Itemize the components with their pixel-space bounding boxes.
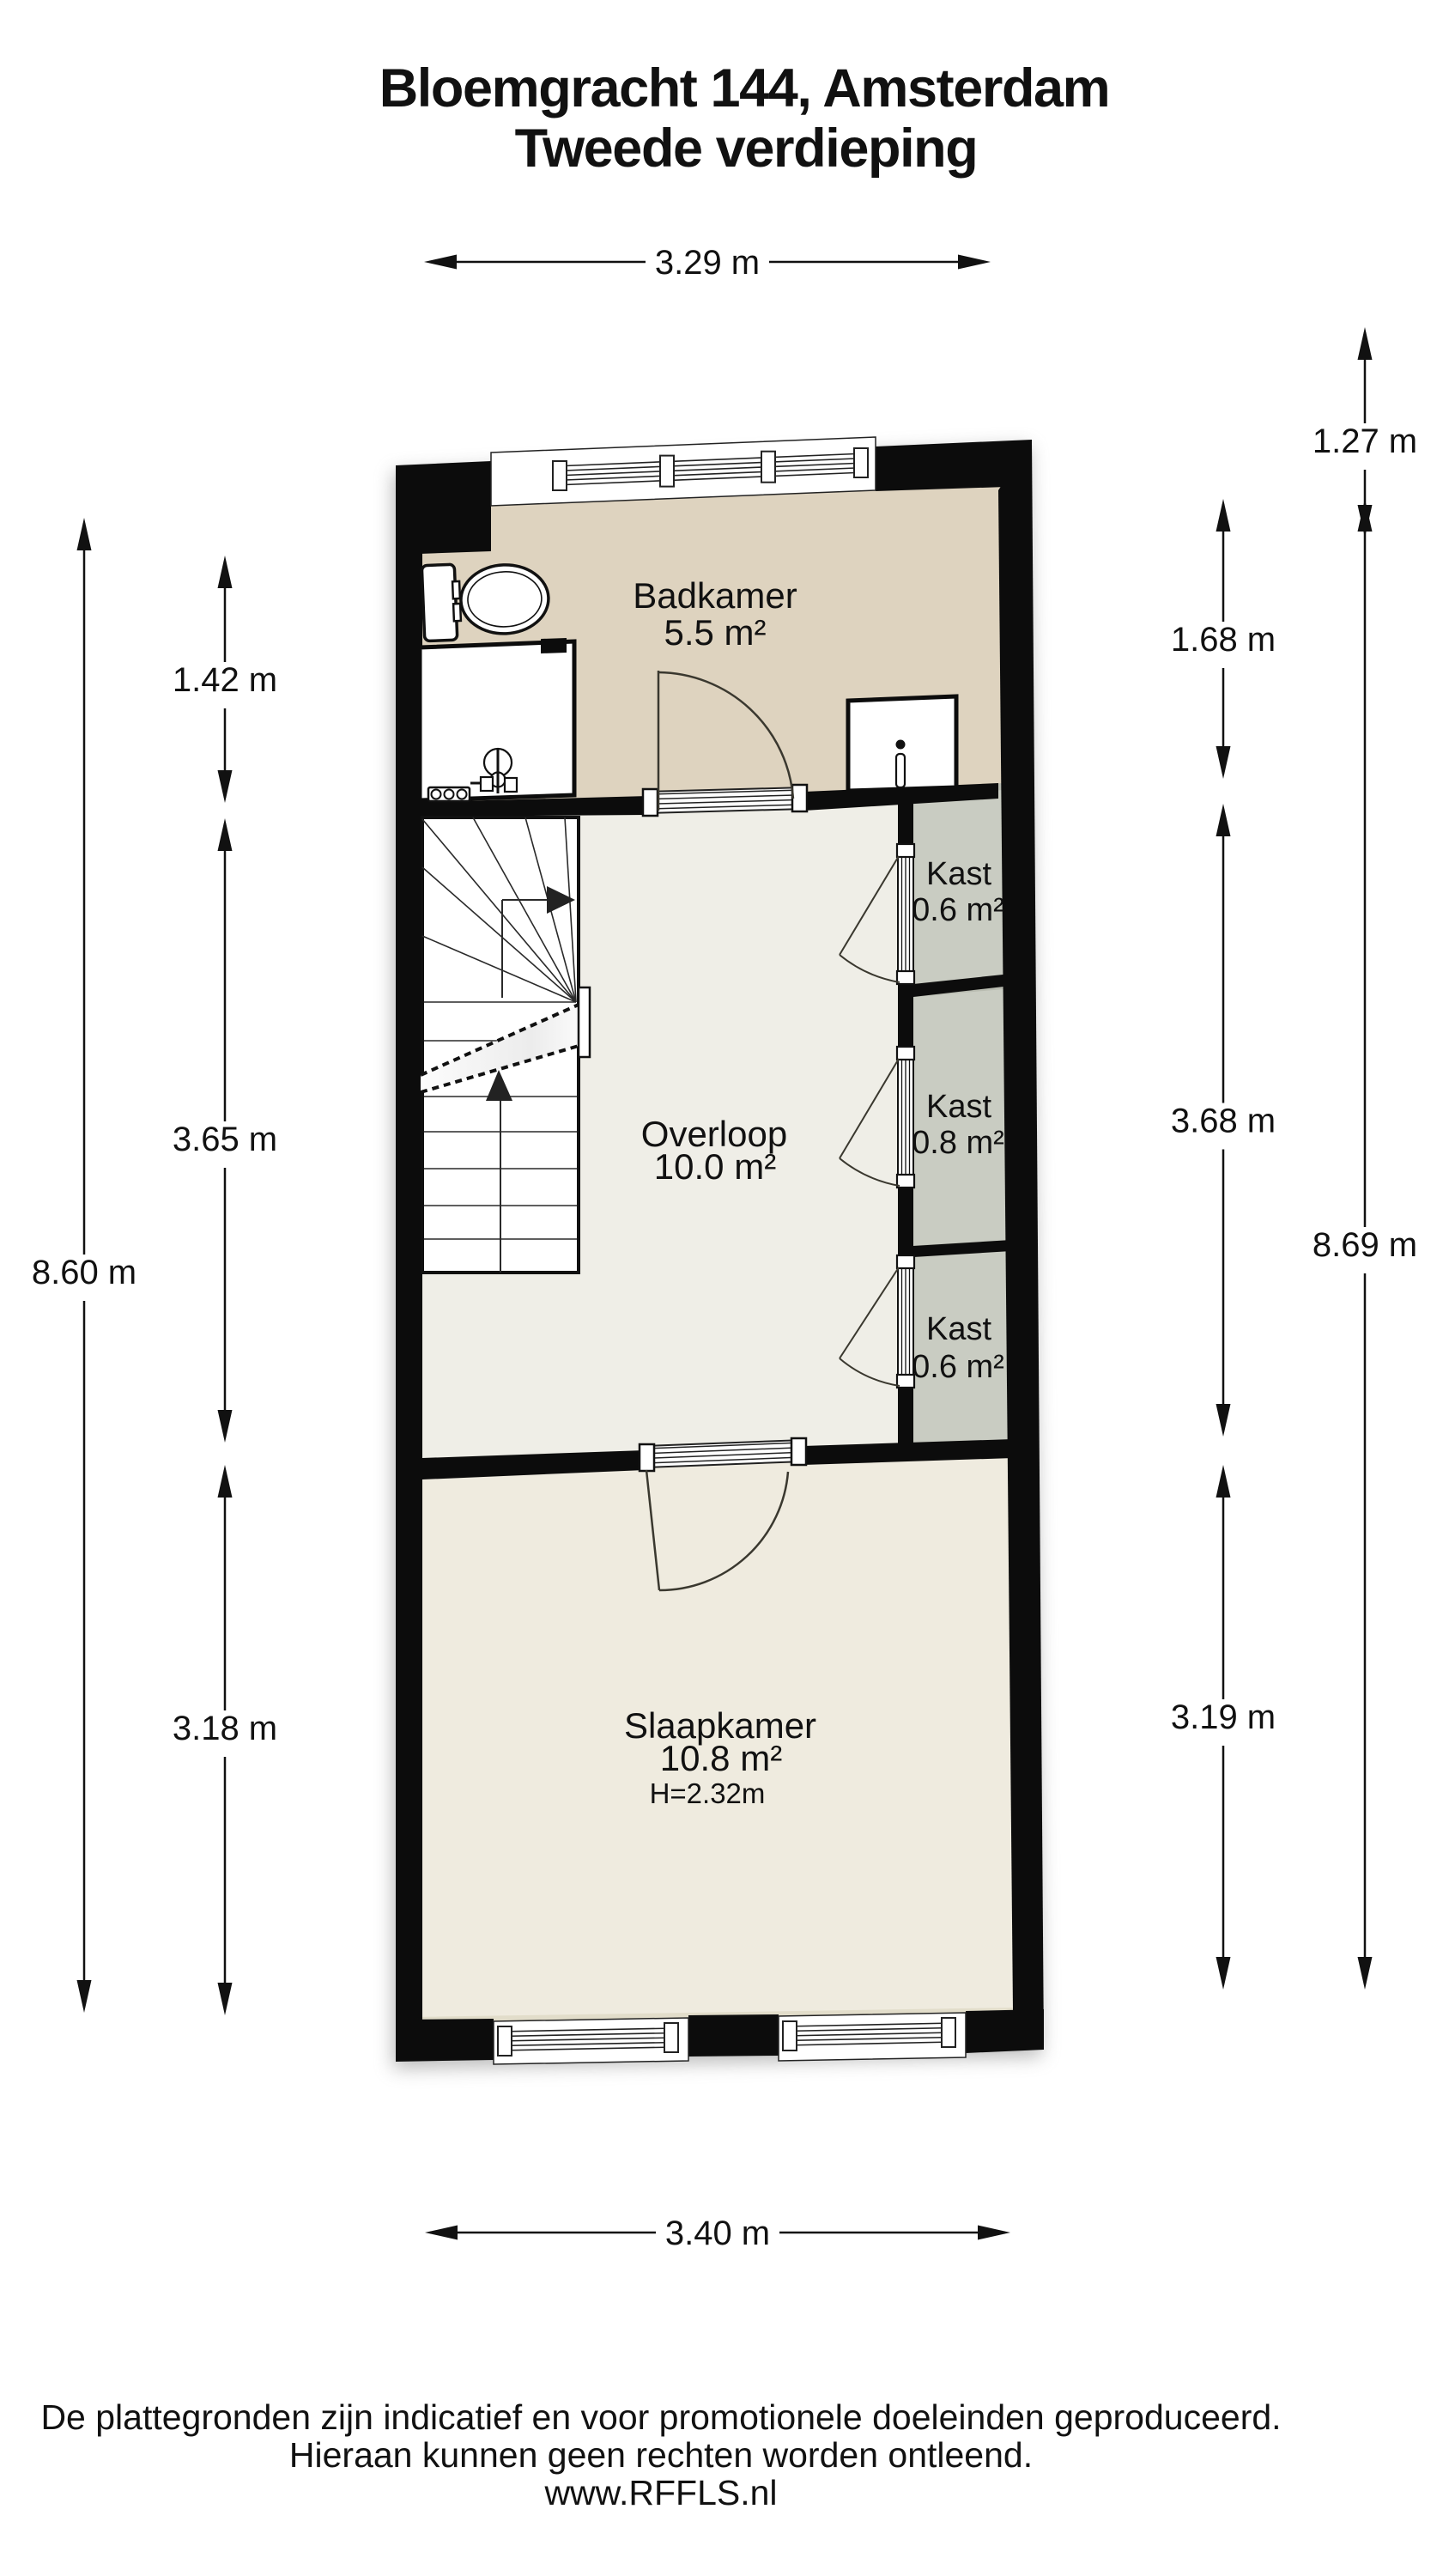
svg-text:De plattegronden zijn indicati: De plattegronden zijn indicatief en voor… <box>40 2397 1281 2437</box>
svg-text:3.18 m: 3.18 m <box>173 1710 277 1747</box>
svg-text:3.68 m: 3.68 m <box>1171 1103 1276 1140</box>
svg-text:8.69 m: 8.69 m <box>1313 1226 1417 1264</box>
svg-text:3.19 m: 3.19 m <box>1171 1698 1276 1736</box>
svg-text:Kast: Kast <box>926 1089 991 1125</box>
svg-text:1.27 m: 1.27 m <box>1313 422 1417 460</box>
svg-text:0.8 m²: 0.8 m² <box>912 1125 1004 1161</box>
svg-text:www.RFFLS.nl: www.RFFLS.nl <box>543 2473 777 2512</box>
svg-text:1.68 m: 1.68 m <box>1171 621 1276 659</box>
svg-text:3.65 m: 3.65 m <box>173 1121 277 1158</box>
svg-text:5.5 m²: 5.5 m² <box>664 612 766 653</box>
svg-text:Bloemgracht 144, Amsterdam: Bloemgracht 144, Amsterdam <box>379 58 1110 118</box>
svg-text:Tweede verdieping: Tweede verdieping <box>515 118 978 179</box>
svg-text:10.8 m²: 10.8 m² <box>660 1738 782 1778</box>
svg-text:3.40 m: 3.40 m <box>665 2215 770 2252</box>
svg-text:Kast: Kast <box>926 856 991 892</box>
svg-text:3.29 m: 3.29 m <box>655 244 760 282</box>
svg-text:H=2.32m: H=2.32m <box>650 1777 766 1809</box>
svg-text:1.42 m: 1.42 m <box>173 661 277 699</box>
svg-text:Hieraan kunnen geen rechten wo: Hieraan kunnen geen rechten worden ontle… <box>289 2435 1033 2475</box>
svg-text:0.6 m²: 0.6 m² <box>912 1349 1004 1385</box>
svg-text:Badkamer: Badkamer <box>633 575 797 616</box>
svg-text:8.60 m: 8.60 m <box>32 1254 136 1291</box>
svg-text:10.0 m²: 10.0 m² <box>654 1146 776 1187</box>
svg-text:0.6 m²: 0.6 m² <box>912 892 1004 928</box>
svg-text:Kast: Kast <box>926 1311 991 1347</box>
